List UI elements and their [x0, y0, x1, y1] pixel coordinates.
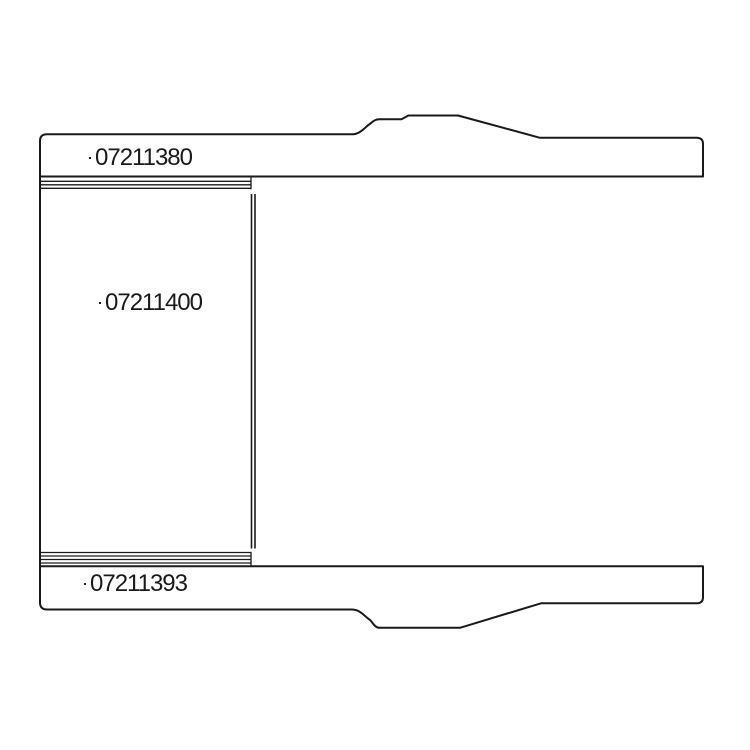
callout-dot-icon: [84, 583, 86, 585]
part-number-upper-blade[interactable]: 07211380: [89, 144, 192, 172]
callout-dot-icon: [89, 157, 91, 159]
cartridge-top-band: [40, 177, 251, 190]
parts-diagram: 07211380 07211400 07211393: [0, 0, 750, 750]
callout-dot-icon: [99, 302, 101, 304]
part-number-text: 07211380: [95, 144, 192, 172]
cartridge-right-edge: [252, 194, 256, 549]
part-number-lower-blade[interactable]: 07211393: [84, 570, 187, 598]
parts-diagram-drawing: [0, 0, 750, 750]
part-number-text: 07211393: [90, 570, 187, 598]
cartridge-bottom-band: [40, 552, 251, 567]
part-number-center-cartridge[interactable]: 07211400: [99, 289, 202, 317]
part-number-text: 07211400: [105, 289, 202, 317]
